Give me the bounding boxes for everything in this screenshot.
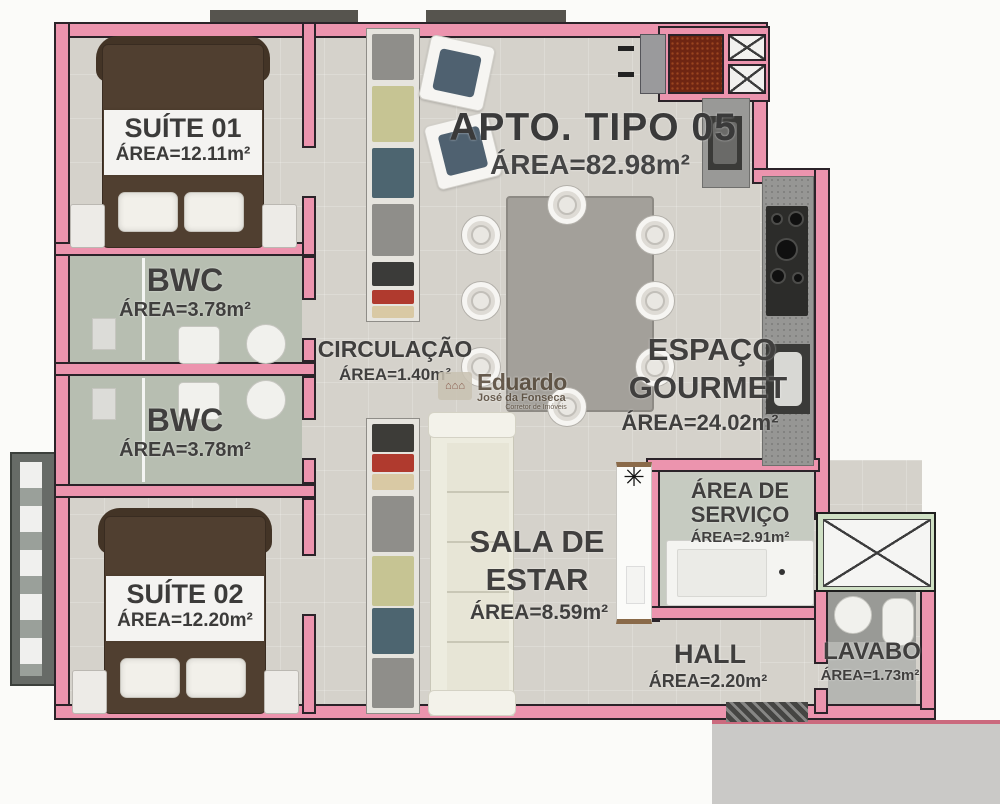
wall-bwc2-right-b [302,458,316,484]
plan-title: APTO. TIPO 05 [449,108,737,149]
gourmet-area: ÁREA=24.02m² [621,412,778,435]
entry-door-hatch [726,702,808,722]
shower-glass [142,378,145,482]
gourmet-name-1: ESPAÇO [648,334,777,366]
lavabo-area: ÁREA=1.73m² [821,668,920,684]
hall-name: HALL [674,640,746,668]
wall-suite01-right-a [302,22,316,148]
stair-hatch [668,34,724,94]
left-window-slats [20,462,42,676]
wardrobe-clothes-olive [372,556,414,606]
left-window-frame [10,452,60,686]
decor-fan-icon: ✳ [618,462,650,492]
dining-chair [636,282,674,320]
nightstand [72,670,107,714]
wardrobe-clothes-teal [372,608,414,654]
laundry-tank [666,540,814,606]
wardrobe-clothes-olive [372,86,414,142]
bwc1-toilet [246,324,286,364]
suite02-area: ÁREA=12.20m² [106,610,264,632]
room-label-suite02: SUÍTE 02 ÁREA=12.20m² [106,576,264,641]
cooktop [766,206,808,316]
gourmet-name-2: GOURMET [629,372,787,404]
burner [770,268,786,284]
watermark-subtitle: José da Fonseca [477,392,567,404]
ac-tick-2 [618,72,634,77]
watermark: ⌂⌂⌂ Eduardo José da Fonseca Corretor de … [438,372,567,412]
tank-knob [779,569,785,575]
bwc1-area: ÁREA=3.78m² [119,300,251,321]
wardrobe-shoes-dark [372,262,414,286]
shower-head [92,388,116,420]
burner [775,238,798,261]
suite02-name: SUÍTE 02 [106,579,264,610]
lavabo-name: LAVABO [823,640,921,665]
nightstand [264,670,299,714]
burner [792,272,804,284]
dining-chair [636,216,674,254]
balcony-ledge-left [210,10,358,22]
watermark-name: Eduardo [477,372,567,392]
balcony-ledge-right [426,10,566,22]
wardrobe-shoes-tan [372,474,414,490]
dining-chair [462,216,500,254]
tank-basin [677,549,767,597]
wall-servico-bottom [646,606,820,620]
servico-name-2: SERVIÇO [691,504,790,527]
watermark-logo-icon: ⌂⌂⌂ [438,372,472,400]
wardrobe-shelf-shoes [372,34,414,80]
sofa-armrest [428,690,516,716]
window-green-frame [816,512,936,592]
burner [771,213,783,225]
dining-chair [462,282,500,320]
sala-name-2: ESTAR [486,564,589,596]
wall-bwc2-right-a [302,376,316,420]
wall-suite02-right-b [302,614,316,714]
wall-bwc1-right-a [302,256,316,300]
duct-x-top [728,34,766,61]
ac-unit [640,34,666,94]
wall-right-lower [920,584,936,710]
wardrobe-shelf-shoes [372,658,414,708]
wall-suite01-right-b [302,196,316,256]
bed-pillow [186,658,246,698]
wardrobe-shoes-dark [372,424,414,452]
lavabo-sink [834,596,872,634]
plan-title-area: ÁREA=82.98m² [490,150,690,179]
wardrobe-clothes-teal [372,148,414,198]
cabinet-drawer [626,566,645,604]
watermark-tagline: Corretor de Imóveis [477,404,567,412]
wardrobe-shoes-tan [372,306,414,318]
window-x-pane [823,519,931,587]
nightstand [262,204,297,248]
exterior-slab [712,720,1000,804]
circulacao-area: ÁREA=1.40m² [339,366,451,384]
room-label-suite01: SUÍTE 01 ÁREA=12.11m² [104,110,262,175]
suite01-area: ÁREA=12.11m² [104,144,262,166]
sofa-armrest [428,412,516,438]
ac-tick-1 [618,46,634,51]
servico-area: ÁREA=2.91m² [691,530,790,546]
bed-pillow [120,658,180,698]
dining-chair [548,186,586,224]
shower-head [92,318,116,350]
nightstand [70,204,105,248]
wall-bwc1-bwc2 [54,362,316,376]
wardrobe-shelf-shoes [372,204,414,256]
wardrobe-shelf-shoes [372,496,414,552]
armchair [418,34,496,112]
suite01-name: SUÍTE 01 [104,113,262,144]
circulacao-name: CIRCULAÇÃO [318,338,473,362]
servico-name-1: ÁREA DE [691,480,789,503]
bed-pillow [184,192,244,232]
hall-area: ÁREA=2.20m² [649,672,768,691]
bwc1-name: BWC [147,264,223,297]
sala-area: ÁREA=8.59m² [470,602,608,624]
wall-suite02-right-a [302,498,316,556]
wall-lavabo-left-b [814,688,828,714]
duct-x-bottom [728,64,766,94]
bwc2-area: ÁREA=3.78m² [119,440,251,461]
floor-plan-canvas: ✳ APTO. TIPO 05 ÁREA=82.98m² SUÍTE 01 ÁR… [0,0,1000,804]
bed-pillow [118,192,178,232]
bwc1-sink [178,326,220,364]
burner [788,211,804,227]
sala-name-1: SALA DE [470,526,605,558]
wardrobe-shoes-red [372,454,414,472]
bwc2-toilet [246,380,286,420]
wardrobe-shoes-red [372,290,414,304]
wall-bwc1-right-b [302,338,316,362]
wall-bwc2-suite02 [54,484,316,498]
bwc2-name: BWC [147,404,223,437]
